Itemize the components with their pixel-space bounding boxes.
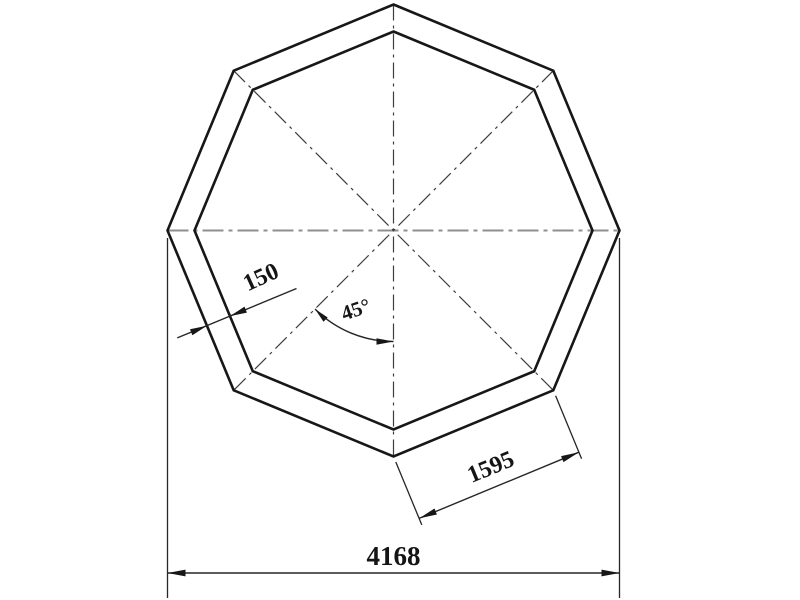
arrowhead-4168-right	[602, 570, 620, 577]
arrowhead-angle-diagonal	[315, 309, 328, 322]
dimension-label-150: 150	[239, 258, 283, 297]
dimension-angle: 45°	[315, 293, 394, 344]
arrowhead-1595-right	[561, 452, 579, 462]
drawing-canvas: 150 45° 1595 4168	[0, 0, 800, 600]
arrowhead-1595-left	[419, 509, 437, 519]
arrowhead-150-outer	[190, 326, 207, 336]
center-lines	[168, 5, 620, 457]
octagon-technical-drawing: 150 45° 1595 4168	[0, 0, 800, 600]
dimension-label-45: 45°	[338, 293, 374, 325]
dimension-side-length: 1595	[396, 396, 582, 525]
arrowhead-4168-left	[168, 570, 186, 577]
arrowhead-150-inner	[230, 307, 247, 317]
extension-line-1595-right	[556, 396, 582, 459]
arrowhead-angle-vertical	[377, 338, 394, 344]
dimension-label-4168: 4168	[367, 541, 421, 571]
extension-line-1595-left	[396, 462, 422, 525]
dimension-label-1595: 1595	[464, 446, 518, 488]
